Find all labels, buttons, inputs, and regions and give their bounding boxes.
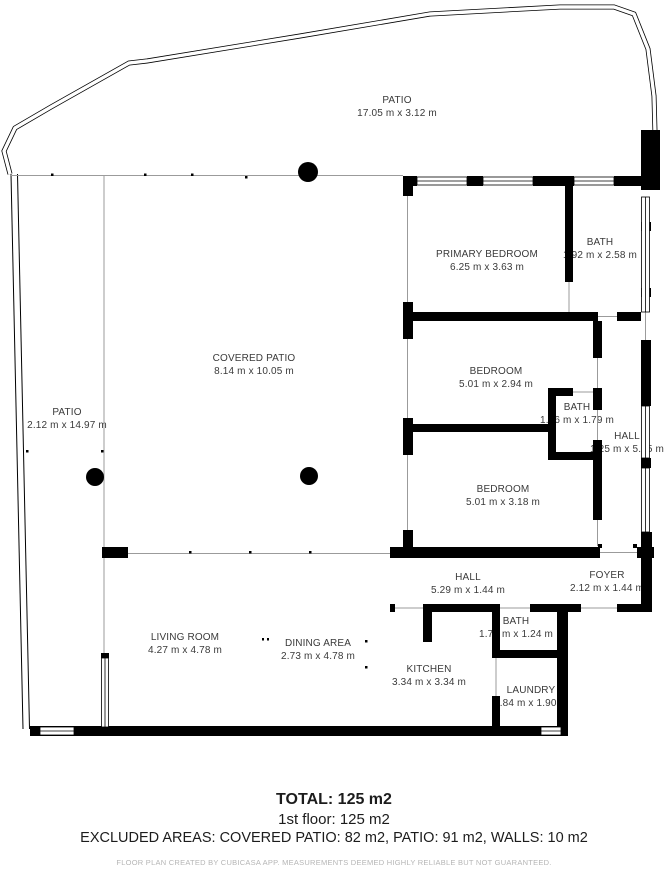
room-label-dining-area: DINING AREA2.73 m x 4.78 m bbox=[281, 638, 355, 663]
room-label-living-room: LIVING ROOM4.27 m x 4.78 m bbox=[148, 632, 222, 657]
disclaimer-text: FLOOR PLAN CREATED BY CUBICASA APP. MEAS… bbox=[0, 858, 668, 867]
excluded-areas-text: EXCLUDED AREAS: COVERED PATIO: 82 m2, PA… bbox=[0, 830, 668, 846]
room-label-foyer: FOYER2.12 m x 1.44 m bbox=[570, 570, 644, 595]
floor-area-text: 1st floor: 125 m2 bbox=[0, 811, 668, 828]
total-area-text: TOTAL: 125 m2 bbox=[0, 791, 668, 809]
room-label-patio-left: PATIO2.12 m x 14.97 m bbox=[27, 407, 107, 432]
room-label-kitchen: KITCHEN3.34 m x 3.34 m bbox=[392, 664, 466, 689]
room-label-primary-bedroom: PRIMARY BEDROOM6.25 m x 3.63 m bbox=[436, 249, 538, 274]
room-label-covered-patio: COVERED PATIO8.14 m x 10.05 m bbox=[213, 353, 296, 378]
room-label-hall-bottom: HALL5.29 m x 1.44 m bbox=[431, 572, 505, 597]
room-label-bath-mid: BATH1.16 m x 1.79 m bbox=[540, 402, 614, 427]
room-label-laundry: LAUNDRY1.84 m x 1.90 m bbox=[494, 685, 568, 710]
room-label-bath-ensuite: BATH1.92 m x 2.58 m bbox=[563, 237, 637, 262]
room-label-patio-top: PATIO17.05 m x 3.12 m bbox=[357, 95, 437, 120]
room-label-hall-right: HALL1.25 m x 5.65 m bbox=[590, 431, 664, 456]
room-label-bedroom-mid: BEDROOM5.01 m x 2.94 m bbox=[459, 366, 533, 391]
room-labels-layer: PATIO17.05 m x 3.12 m PATIO2.12 m x 14.9… bbox=[0, 0, 668, 874]
room-label-bath-guest: BATH1.78 m x 1.24 m bbox=[479, 616, 553, 641]
floorplan-canvas: PATIO17.05 m x 3.12 m PATIO2.12 m x 14.9… bbox=[0, 0, 668, 874]
room-label-bedroom-low: BEDROOM5.01 m x 3.18 m bbox=[466, 484, 540, 509]
